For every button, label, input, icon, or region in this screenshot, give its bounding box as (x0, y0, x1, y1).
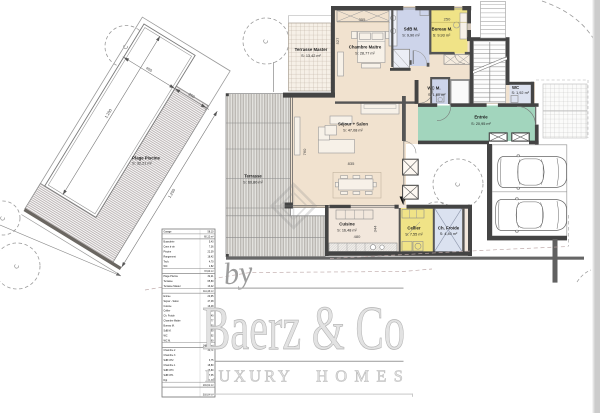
svg-text:Bureau M.: Bureau M. (432, 27, 453, 32)
svg-text:S: 32,21 m²: S: 32,21 m² (132, 162, 152, 166)
svg-text:Tech.: Tech. (164, 260, 170, 263)
svg-text:1,82: 1,82 (209, 265, 214, 268)
svg-text:WC: WC (512, 85, 519, 90)
svg-text:SdB CH3: SdB CH3 (164, 369, 175, 372)
svg-text:Chambre 3: Chambre 3 (164, 354, 176, 357)
svg-text:Ch. Froide: Ch. Froide (164, 315, 176, 318)
svg-text:Cuisine: Cuisine (339, 222, 355, 227)
svg-text:Plage Piscine: Plage Piscine (164, 275, 179, 278)
svg-text:S: 1,92 m²: S: 1,92 m² (512, 91, 530, 95)
svg-text:Entrée: Entrée (474, 115, 488, 120)
svg-text:Chambre 2: Chambre 2 (164, 349, 176, 352)
svg-text:22,39: 22,39 (208, 250, 215, 253)
svg-text:835: 835 (348, 161, 355, 166)
svg-text:5,43: 5,43 (209, 241, 214, 244)
svg-text:Bureau M.: Bureau M. (164, 325, 175, 328)
svg-text:S: 9,90 m²: S: 9,90 m² (402, 34, 420, 38)
svg-text:344: 344 (373, 225, 378, 232)
svg-text:58,10: 58,10 (208, 231, 215, 234)
svg-text:by: by (222, 254, 255, 292)
svg-text:4,70: 4,70 (209, 260, 214, 263)
svg-text:355: 355 (359, 17, 366, 22)
svg-text:Dgt: Dgt (164, 379, 168, 382)
svg-text:S: 4,40 m²: S: 4,40 m² (440, 232, 458, 236)
svg-text:HOMES: HOMES (316, 367, 410, 386)
svg-text:Chambre Maitre: Chambre Maitre (164, 320, 182, 323)
svg-text:Buanderie: Buanderie (164, 241, 176, 244)
svg-text:S: 16,48 m²: S: 16,48 m² (337, 229, 357, 233)
svg-text:Cellier: Cellier (407, 226, 420, 231)
svg-text:SdB M.: SdB M. (164, 330, 172, 333)
svg-text:111,43 m²: 111,43 m² (203, 290, 214, 293)
svg-text:Rangement: Rangement (164, 255, 177, 258)
svg-text:32,21: 32,21 (208, 275, 215, 278)
svg-text:Chambre 1: Chambre 1 (164, 364, 176, 367)
svg-text:Séjour - Salon: Séjour - Salon (164, 300, 180, 303)
svg-text:Terrasse: Terrasse (164, 280, 174, 283)
svg-text:S: 60,80 m²: S: 60,80 m² (243, 181, 263, 185)
svg-text:WC M.: WC M. (164, 339, 172, 342)
svg-text:Entrée: Entrée (164, 295, 172, 298)
svg-text:72,04 m²: 72,04 m² (204, 270, 214, 273)
svg-text:Séjour + Salon: Séjour + Salon (338, 122, 368, 127)
svg-text:Cuisine: Cuisine (164, 305, 173, 308)
svg-text:Chambre Maitre: Chambre Maitre (349, 45, 382, 50)
svg-text:Garage: Garage (164, 231, 173, 234)
svg-text:WC: WC (164, 265, 168, 268)
svg-text:60,12 m²: 60,12 m² (204, 236, 214, 239)
svg-text:65,80: 65,80 (208, 280, 215, 283)
svg-text:WC M.: WC M. (427, 86, 440, 91)
svg-text:Ch. Froide: Ch. Froide (438, 226, 460, 231)
svg-text:527: 527 (335, 37, 340, 44)
svg-text:760: 760 (302, 148, 307, 155)
svg-text:LUXURY: LUXURY (205, 367, 293, 386)
svg-text:250: 250 (444, 17, 451, 22)
svg-text:13,42: 13,42 (208, 285, 215, 288)
svg-text:S: 13,42 m²: S: 13,42 m² (301, 54, 321, 58)
svg-text:S: 28,77 m²: S: 28,77 m² (355, 52, 375, 56)
svg-text:18,42: 18,42 (208, 255, 215, 258)
svg-text:Plage Piscine: Plage Piscine (132, 156, 160, 161)
svg-text:Cave à vin: Cave à vin (164, 246, 176, 249)
svg-text:480: 480 (354, 234, 361, 239)
svg-text:SdB M.: SdB M. (404, 27, 419, 32)
svg-text:Terrasse Master: Terrasse Master (295, 47, 328, 52)
svg-text:Cellier: Cellier (164, 310, 171, 313)
svg-text:Terrasse: Terrasse (244, 174, 262, 179)
svg-text:Baerz & Co: Baerz & Co (202, 295, 405, 363)
svg-text:Piscine: Piscine (164, 250, 172, 253)
svg-text:S: 7,55 m²: S: 7,55 m² (405, 233, 423, 237)
svg-text:SdB CH1: SdB CH1 (164, 374, 175, 377)
svg-text:S: 9,93 m²: S: 9,93 m² (433, 34, 451, 38)
svg-text:7,36: 7,36 (209, 246, 214, 249)
svg-text:WC: WC (164, 334, 168, 337)
svg-text:Terrasse Master: Terrasse Master (164, 285, 181, 288)
svg-text:S: 47,08 m²: S: 47,08 m² (343, 129, 363, 133)
svg-text:SdB CH2: SdB CH2 (164, 359, 175, 362)
